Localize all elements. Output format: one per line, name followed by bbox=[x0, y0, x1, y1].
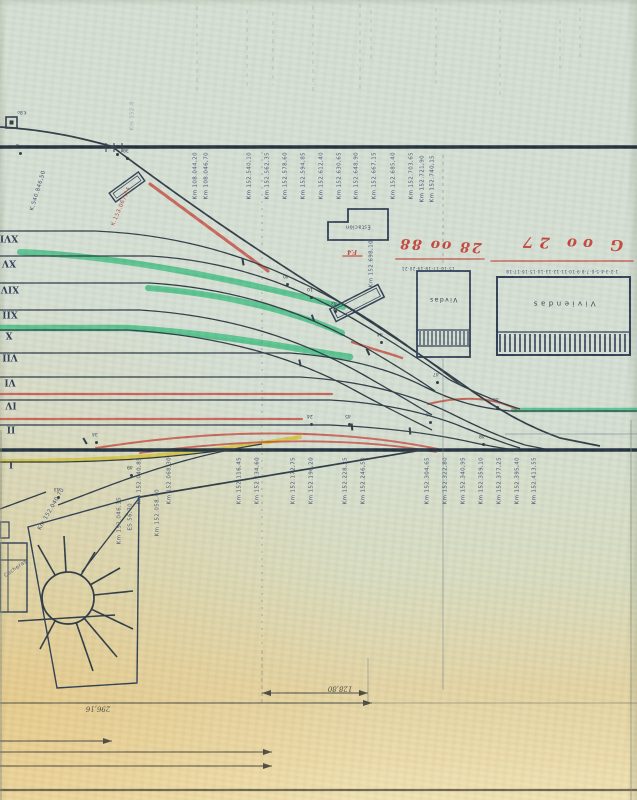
switch-number: 48 bbox=[479, 433, 485, 438]
switch-dot: 36 bbox=[116, 153, 119, 156]
km-label: Km 152.8 bbox=[130, 101, 136, 131]
switch-dot: 46 bbox=[496, 406, 499, 409]
building-name: Estación bbox=[345, 224, 370, 229]
km-label: Km 152.377,25 bbox=[497, 457, 503, 504]
switch-dot: 49 bbox=[130, 474, 133, 477]
km-label: Km 152.395,40 bbox=[515, 457, 521, 504]
km-label: Km 152.228,35 bbox=[343, 457, 349, 504]
km-label: Km 152.190,20 bbox=[309, 457, 315, 504]
building-name: Vivdas bbox=[429, 296, 458, 302]
switch-number: 24 bbox=[307, 413, 313, 418]
km-label: Km 152.068,30 bbox=[167, 457, 173, 504]
km-label: Km 152.058,40 bbox=[155, 489, 161, 536]
switch-number: 45 bbox=[345, 413, 351, 418]
km-label: Km 152.413,55 bbox=[532, 457, 538, 504]
km-label: Km 152.040,70 bbox=[38, 488, 66, 532]
switch-dot: 44 bbox=[429, 421, 432, 424]
dimension-value: 296,16 bbox=[86, 705, 111, 712]
track-number: XII bbox=[2, 309, 17, 318]
tiny-text: 1·2·3·4·5·6·7·8·9·10·11·12·13·14·15·16·1… bbox=[506, 269, 618, 273]
km-label: Km 152.648,90 bbox=[354, 152, 360, 199]
scanned-track-plan: XVIXVXIVXIIXVIIVIIVIII Km 108.044,20Km 1… bbox=[0, 0, 637, 800]
km-label: K.153.067,54 bbox=[111, 187, 132, 227]
km-label: Km 152.578,60 bbox=[283, 152, 289, 199]
switch-number: 44 bbox=[377, 331, 383, 336]
building-name: Viviendas bbox=[530, 300, 595, 307]
km-label: Km 152.698,10 bbox=[369, 240, 375, 287]
switch-dot: 40 bbox=[286, 283, 289, 286]
km-label: Km 108.044,20 bbox=[193, 152, 199, 199]
switch-number: 38 bbox=[123, 147, 129, 152]
switch-number: 10 bbox=[307, 286, 313, 291]
tiny-text: K.Bo bbox=[17, 110, 26, 114]
km-label: Km 152.046,15 bbox=[117, 497, 123, 544]
label-layer: XVIXVXIVXIIXVIIVIIVIII Km 108.044,20Km 1… bbox=[0, 0, 637, 800]
track-number: XIV bbox=[1, 284, 19, 293]
km-label: Km 152.721,90 bbox=[420, 155, 426, 202]
switch-dot: 42 bbox=[334, 310, 337, 313]
km-label: Km 152.040,85 bbox=[137, 457, 143, 504]
red-handwriting: G oo 27 bbox=[517, 234, 624, 253]
km-label: Km 152.134,60 bbox=[255, 457, 261, 504]
switch-number: 34 bbox=[92, 431, 98, 436]
tiny-text: 15·16·17·18·19·20·21 bbox=[401, 266, 454, 270]
km-label: Km 152.612,40 bbox=[319, 152, 325, 199]
switch-dot: 38 bbox=[126, 157, 129, 160]
red-handwriting: 28 oo 88 bbox=[398, 236, 482, 254]
switch-dot: 4 bbox=[19, 152, 22, 155]
switch-number: 46 bbox=[493, 396, 499, 401]
track-number: II bbox=[7, 424, 15, 433]
switch-number: 44 bbox=[426, 411, 432, 416]
km-label: Km 152.304,65 bbox=[425, 457, 431, 504]
dimension-value: 128,80 bbox=[328, 685, 353, 692]
switch-number: 4 bbox=[16, 142, 19, 147]
track-number: VI bbox=[4, 377, 15, 386]
km-label: Km 152.630,65 bbox=[337, 152, 343, 199]
km-label: Km 152.359,10 bbox=[479, 457, 485, 504]
switch-dot: 45 bbox=[348, 423, 351, 426]
switch-dot: 24 bbox=[310, 423, 313, 426]
track-number: VII bbox=[2, 352, 17, 361]
switch-number: 43 bbox=[54, 486, 60, 491]
km-label: K.540.846,50 bbox=[30, 170, 47, 211]
switch-dot: 48 bbox=[482, 443, 485, 446]
switch-number: 40 bbox=[283, 273, 289, 278]
km-label: Km 152.562,35 bbox=[265, 152, 271, 199]
km-label: Km 152.594,85 bbox=[301, 152, 307, 199]
km-label: Km 152.740,15 bbox=[430, 155, 436, 202]
km-label: Km 152.685,40 bbox=[391, 152, 397, 199]
switch-number: 36 bbox=[113, 143, 119, 148]
km-label: Cocheras bbox=[4, 560, 29, 579]
red-handwriting: F.4 bbox=[347, 248, 357, 254]
track-number: X bbox=[6, 330, 13, 339]
track-number: I bbox=[9, 459, 13, 468]
switch-dot: 43 bbox=[57, 496, 60, 499]
track-number: IV bbox=[5, 400, 16, 409]
km-label: Km 152.246,50 bbox=[361, 457, 367, 504]
km-label: Km 152.322,80 bbox=[443, 457, 449, 504]
track-number: XV bbox=[2, 258, 16, 267]
switch-dot: 47 bbox=[436, 381, 439, 384]
switch-number: 42 bbox=[331, 300, 337, 305]
track-number: XVI bbox=[0, 233, 18, 242]
km-label: ES 56,70 bbox=[128, 503, 134, 531]
switch-dot: 44 bbox=[380, 341, 383, 344]
km-label: Km 152.703,65 bbox=[409, 152, 415, 199]
km-label: Km 152.172,75 bbox=[291, 457, 297, 504]
switch-dot: 34 bbox=[95, 441, 98, 444]
switch-number: 49 bbox=[127, 464, 133, 469]
km-label: Km 108.046,70 bbox=[204, 152, 210, 199]
km-label: Km 152.116,45 bbox=[237, 457, 243, 504]
km-label: Km 152.667,15 bbox=[372, 152, 378, 199]
km-label: Km 152.540,10 bbox=[247, 152, 253, 199]
km-label: Km 152.340,95 bbox=[461, 457, 467, 504]
switch-dot: 10 bbox=[310, 296, 313, 299]
switch-number: 47 bbox=[433, 371, 439, 376]
